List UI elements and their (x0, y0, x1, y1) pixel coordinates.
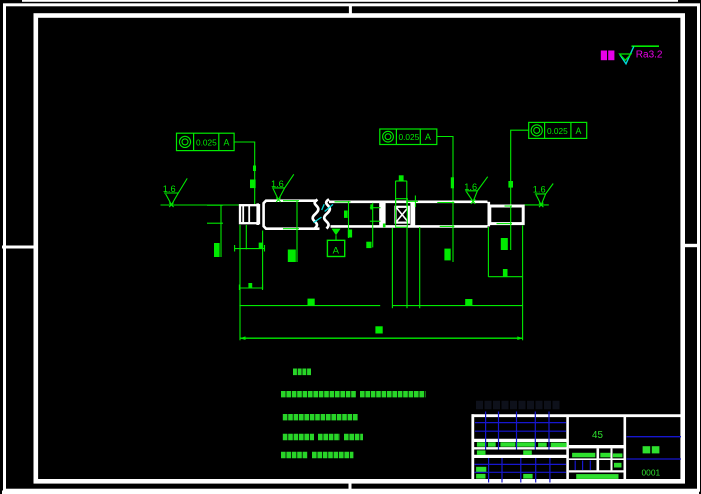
svg-text:A: A (333, 245, 340, 256)
svg-text:0.025: 0.025 (547, 126, 568, 136)
svg-text:A: A (224, 138, 230, 148)
svg-text:0.025: 0.025 (399, 132, 420, 142)
svg-text:A: A (425, 132, 431, 142)
svg-text:45: 45 (592, 430, 603, 441)
svg-text:Ra3.2: Ra3.2 (636, 50, 663, 61)
svg-text:A: A (576, 126, 582, 136)
svg-text:1.6: 1.6 (533, 185, 546, 195)
svg-text:0001: 0001 (642, 467, 661, 477)
svg-text:0.025: 0.025 (196, 137, 217, 147)
